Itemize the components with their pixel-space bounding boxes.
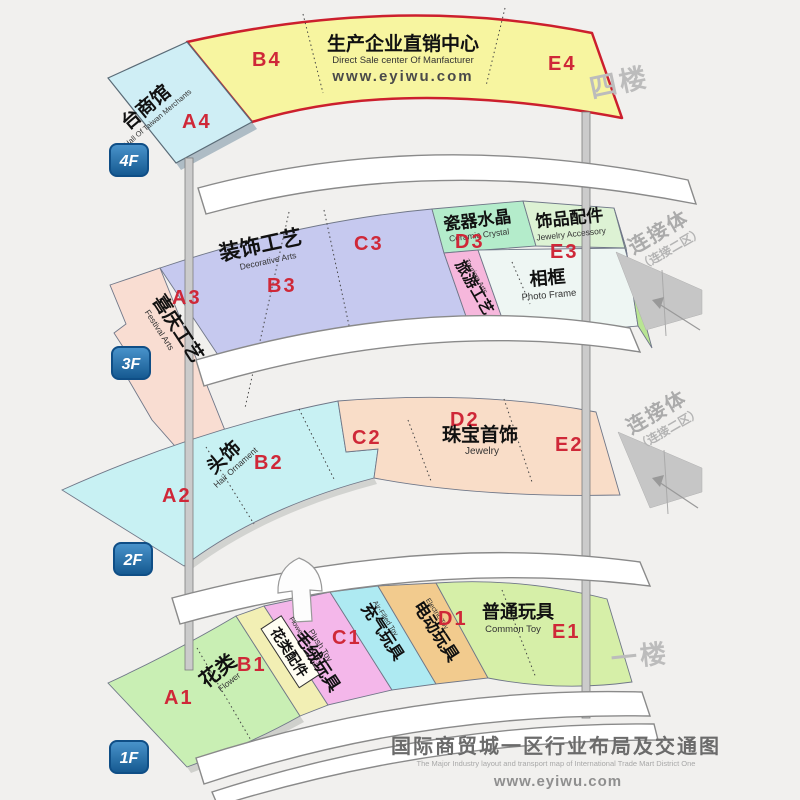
trade-mart-floor-map: 台商馆 Hall Of Taiwan Merchants A4 B4 E4 生产… [0,0,800,800]
direct-sale-en: Direct Sale center Of Manfacturer [332,55,474,66]
zone-code-c3: C3 [354,233,384,255]
zone-code-b1: B1 [237,654,267,676]
map-website: www.eyiwu.com [493,773,622,790]
zone-code-d1: D1 [438,608,468,630]
floor-1-side-label: 一楼 [609,638,670,674]
badge-2f-text: 2F [123,552,144,569]
zone-code-e2: E2 [555,434,583,456]
zone-code-c1: C1 [332,627,362,649]
jewelry-cn: 珠宝首饰 [442,423,518,446]
zone-code-e3: E3 [550,241,578,263]
zone-code-e4: E4 [548,53,576,75]
badge-2f: 2F [114,543,152,575]
zone-code-e1: E1 [552,621,580,643]
direct-sale-cn: 生产企业直销中心 [327,32,479,55]
zone-code-c2: C2 [352,427,382,449]
jewelry-en: Jewelry [465,446,499,457]
common-toy-en: Common Toy [485,624,541,635]
zone-code-a1: A1 [164,687,194,709]
zone-code-a2: A2 [162,485,192,507]
badge-3f-text: 3F [122,356,142,373]
badge-3f: 3F [112,347,150,379]
floor-map-canvas: 台商馆 Hall Of Taiwan Merchants A4 B4 E4 生产… [0,0,800,800]
common-toy-cn: 普通玩具 [482,601,554,622]
direct-sale-label: 生产企业直销中心 Direct Sale center Of Manfactur… [327,32,479,85]
zone-code-a4: A4 [182,111,212,133]
zone-code-a3: A3 [172,287,202,309]
right-column [582,112,590,718]
zone-code-b2: B2 [254,452,284,474]
badge-4f: 4F [110,144,148,176]
badge-1f: 1F [110,741,148,773]
map-title: 国际商贸城一区行业布局及交通图 [391,734,721,758]
photo-frame-cn: 相框 [529,266,567,289]
badge-1f-text: 1F [120,750,140,767]
zone-code-b3: B3 [267,275,297,297]
zone-code-b4: B4 [252,49,282,71]
map-subtitle: The Major Industry layout and transport … [417,759,696,768]
badge-4f-text: 4F [119,153,140,170]
zone-code-d3: D3 [455,231,485,253]
direct-sale-web: www.eyiwu.com [331,68,473,85]
